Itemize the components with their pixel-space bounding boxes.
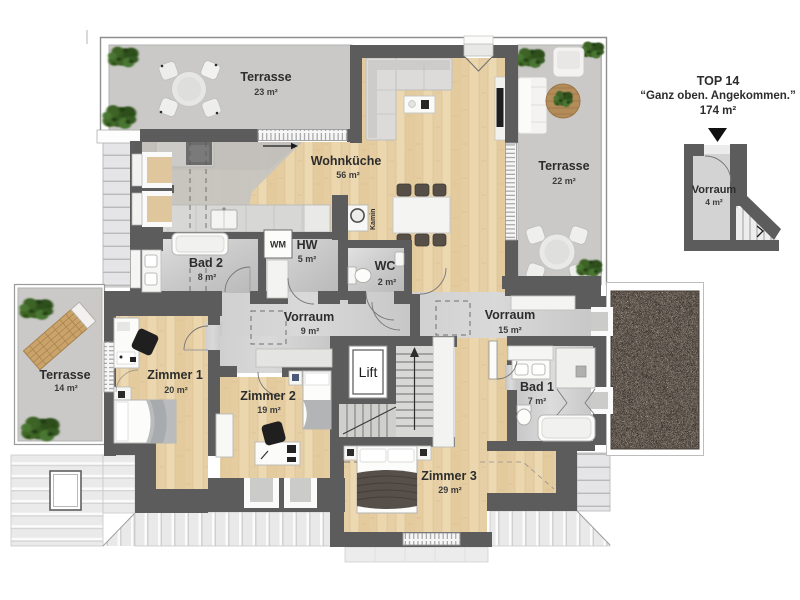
svg-text:Zimmer 2: Zimmer 2 [240,389,296,403]
svg-text:Terrasse: Terrasse [39,368,90,382]
svg-text:WC: WC [375,259,396,273]
svg-text:5 m²: 5 m² [298,254,317,264]
svg-text:7 m²: 7 m² [528,396,547,406]
svg-text:2 m²: 2 m² [378,277,397,287]
svg-text:Vorraum: Vorraum [692,184,737,196]
svg-text:Bad 2: Bad 2 [189,256,223,270]
svg-text:Wohnküche: Wohnküche [311,154,382,168]
svg-text:174 m²: 174 m² [700,105,737,117]
svg-text:TOP 14: TOP 14 [697,74,740,88]
svg-text:22 m²: 22 m² [552,176,576,186]
svg-text:Zimmer 1: Zimmer 1 [147,368,203,382]
svg-text:WM: WM [270,240,286,250]
svg-text:“Ganz oben. Angekommen.”: “Ganz oben. Angekommen.” [640,90,795,102]
svg-text:HW: HW [297,238,318,252]
svg-text:20 m²: 20 m² [164,385,188,395]
svg-text:Kamin: Kamin [370,209,377,230]
svg-text:4 m²: 4 m² [705,197,723,207]
svg-text:9 m²: 9 m² [301,326,320,336]
svg-text:14 m²: 14 m² [54,383,78,393]
svg-text:29 m²: 29 m² [438,485,462,495]
svg-text:Zimmer 3: Zimmer 3 [421,469,477,483]
svg-text:Terrasse: Terrasse [240,70,291,84]
svg-text:Terrasse: Terrasse [538,159,589,173]
svg-text:15 m²: 15 m² [498,325,522,335]
svg-text:Lift: Lift [359,364,378,380]
svg-text:Vorraum: Vorraum [284,310,334,324]
svg-text:23 m²: 23 m² [254,87,278,97]
svg-text:56 m²: 56 m² [336,170,360,180]
svg-text:Bad 1: Bad 1 [520,380,554,394]
svg-text:19 m²: 19 m² [257,405,281,415]
svg-text:8 m²: 8 m² [198,272,217,282]
svg-text:Vorraum: Vorraum [485,308,535,322]
